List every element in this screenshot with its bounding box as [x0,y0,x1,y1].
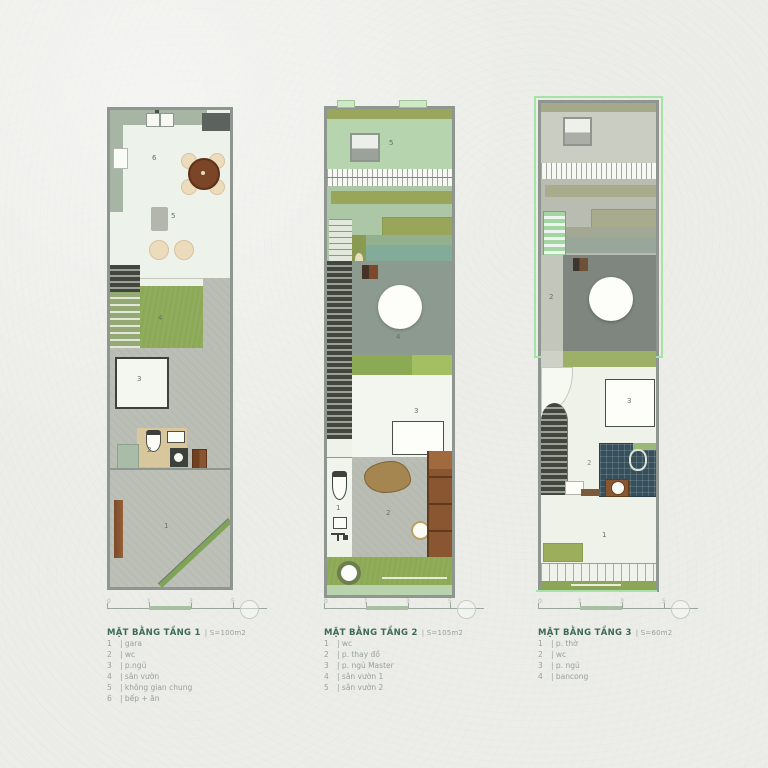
legend-item-label: | sân vườn [120,672,159,681]
legend-item-number: 6 [107,694,120,703]
void-opening [378,285,422,329]
side-strip [541,255,563,351]
corridor [327,439,352,457]
water-band-muted [563,237,656,253]
legend-item-label: | p. thay đồ [337,650,380,659]
room-number-2: 2 [386,509,390,517]
legend-item-number: 1 [324,639,337,648]
scale-bar-1: 0 1 3 5 [107,598,272,620]
plan-title: MẶT BẰNG TẦNG 1 [107,628,201,638]
legend-item-number: 5 [324,683,337,692]
room-number-2: 2 [147,446,151,454]
legend-item-number: 2 [107,650,120,659]
room-number-6: 6 [152,154,156,162]
legend-item-label: | p. ngủ [551,661,580,670]
legend-item: 5| sân vườn 2 [324,683,534,694]
bedroom [115,357,169,409]
floor-plan-2-interior: 5 4 3 1 2 [327,109,452,595]
legend-floor-2: MẶT BẰNG TẦNG 2| S=105m2 1| wc 2| p. tha… [324,628,534,693]
floor-plan-1: 6 5 4 3 2 1 [107,107,233,590]
room-number-4: 4 [158,314,162,322]
planter-band [327,109,452,119]
legend-item-number: 4 [107,672,120,681]
pouf [149,240,169,260]
scale-segment [366,606,408,610]
stairs [327,261,353,439]
sink-basin [160,113,174,127]
legend-item: 3| p. ngủ [538,661,748,672]
floor-plan-3-interior: 2 3 2 1 [541,103,656,589]
walkway [203,278,230,348]
vanity-sink [611,481,625,495]
planting-strip [563,351,656,367]
legend-item-number: 3 [107,661,120,670]
stairs-upper [110,265,140,292]
planter-band-muted [541,103,656,112]
planter-band-muted [545,185,656,197]
stairs [541,403,568,495]
side-table [151,207,168,231]
legend-item: 3| p.ngủ [107,661,317,672]
balcony-railing [541,563,656,582]
scale-bar-2: 0 1 3 5 [324,598,489,620]
floor-mat [581,489,600,496]
garden-path [382,577,447,579]
plan-area: | S=60m2 [636,629,673,637]
pergola-beam [327,177,452,178]
legend-item-label: | p. thờ [551,639,578,648]
wardrobe-top [429,451,452,469]
roof-vent [399,100,427,108]
scale-segment [149,606,191,610]
planter-band [352,235,452,245]
scale-segment [107,608,149,609]
shower-drain [174,453,183,462]
legend-item-number: 5 [107,683,120,692]
legend-item: 3| p. ngủ Master [324,661,534,672]
plan-area: | S=100m2 [205,629,246,637]
toilet [629,449,647,471]
room-number-3: 3 [137,375,141,383]
legend-item-number: 4 [538,672,551,681]
legend-floor-1: MẶT BẰNG TẦNG 1| S=100m2 1| gara 2| wc 3… [107,628,317,704]
planter-band-muted [563,227,656,237]
room-number-1: 1 [602,531,606,539]
north-symbol [457,600,476,619]
room-number-1: 1 [164,522,168,530]
legend-item-number: 2 [324,650,337,659]
legend-item: 1| wc [324,639,534,650]
room-number-4: 4 [396,333,400,341]
arrival-stairs [543,211,566,257]
legend-item-label: | wc [120,650,135,659]
room-number-1: 1 [336,504,340,512]
plan-title: MẶT BẰNG TẦNG 3 [538,628,632,638]
pergola-slats [541,163,656,179]
page: { "plans": [ { "title": "MẶT BẰNG TẦNG 1… [0,0,768,768]
planter-band [331,191,452,204]
sink-basin [146,113,160,127]
legend-item: 2| p. thay đồ [324,650,534,661]
shower-head [343,535,348,540]
floor-outline-bottom [536,590,657,592]
planting-strip-light [412,355,452,375]
legend-item-number: 1 [107,639,120,648]
garage [110,470,230,587]
planter-highlight [571,584,621,586]
scale-segment [580,606,622,610]
terrace-steps [329,219,352,261]
legend-item-label: | bancong [551,672,588,681]
legend-item-label: | không gian chung [120,683,192,692]
room-number-3: 3 [414,407,418,415]
legend-item-number: 1 [538,639,551,648]
garden [140,286,203,348]
plan-area: | S=105m2 [422,629,463,637]
stairs [110,292,140,350]
floor-plan-2: 5 4 3 1 2 [324,106,455,598]
scale-segment [538,608,580,609]
legend-item: 2| wc [107,650,317,661]
prayer-rug [543,543,583,562]
legend-item: 5| không gian chung [107,683,317,694]
cabinet-green [117,444,139,469]
legend-item: 4| bancong [538,672,748,683]
north-symbol [671,600,690,619]
floor-plan-1-interior: 6 5 4 3 2 1 [110,110,230,587]
washbasin [167,431,185,443]
dark-block [202,113,230,131]
room-number-5: 5 [389,139,393,147]
legend-item: 1| gara [107,639,317,650]
legend-floor-3: MẶT BẰNG TẦNG 3| S=60m2 1| p. thờ 2| wc … [538,628,748,682]
bed [392,421,444,455]
scale-segment [324,608,366,609]
legend-item: 2| wc [538,650,748,661]
legend-item: 6| bếp + ăn [107,694,317,705]
planter-band [382,217,452,237]
legend-title: MẶT BẰNG TẦNG 3| S=60m2 [538,628,748,638]
planter-band-muted [591,209,656,229]
skylight [563,117,592,146]
plan-title: MẶT BẰNG TẦNG 2 [324,628,418,638]
table-center [201,171,205,175]
rear-planter-edge [327,585,452,595]
wood-plank-door [114,500,123,558]
legend-item-label: | wc [337,639,352,648]
void-number-2: 2 [549,293,553,301]
shower-pipe [337,533,339,541]
legend-item-label: | sân vườn 2 [337,683,383,692]
legend-item-label: | p.ngủ [120,661,146,670]
legend-item-number: 2 [538,650,551,659]
legend-item-label: | gara [120,639,142,648]
planter-box [573,258,588,271]
roof-vent [337,100,355,108]
tree-canopy [341,565,357,581]
toilet [332,471,347,500]
scale-bar-3: 0 1 3 5 [538,598,703,620]
planter-box [362,265,378,279]
legend-item: 4| sân vườn [107,672,317,683]
legend-item-label: | wc [551,650,566,659]
room-number-3: 3 [627,397,631,405]
legend-item-number: 4 [324,672,337,681]
legend-item-label: | p. ngủ Master [337,661,394,670]
skylight [350,133,380,162]
legend-item-label: | bếp + ăn [120,694,159,703]
roof-below [541,112,656,163]
legend-item-number: 3 [324,661,337,670]
legend-title: MẶT BẰNG TẦNG 1| S=100m2 [107,628,317,638]
void-opening [589,277,633,321]
water-band [352,245,452,261]
legend-title: MẶT BẰNG TẦNG 2| S=105m2 [324,628,534,638]
north-symbol [240,600,259,619]
room-number-2: 2 [587,459,591,467]
room-number-5: 5 [171,212,175,220]
legend-item-number: 3 [538,661,551,670]
legend-item: 4| sân vườn 1 [324,672,534,683]
washbasin [333,517,347,529]
legend-item-label: | sân vườn 1 [337,672,383,681]
pouf [174,240,194,260]
side-strip [541,351,563,367]
fridge [113,148,128,169]
legend-item: 1| p. thờ [538,639,748,650]
stone-feature [364,461,411,493]
floor-plan-3: 2 3 2 1 [538,100,659,592]
